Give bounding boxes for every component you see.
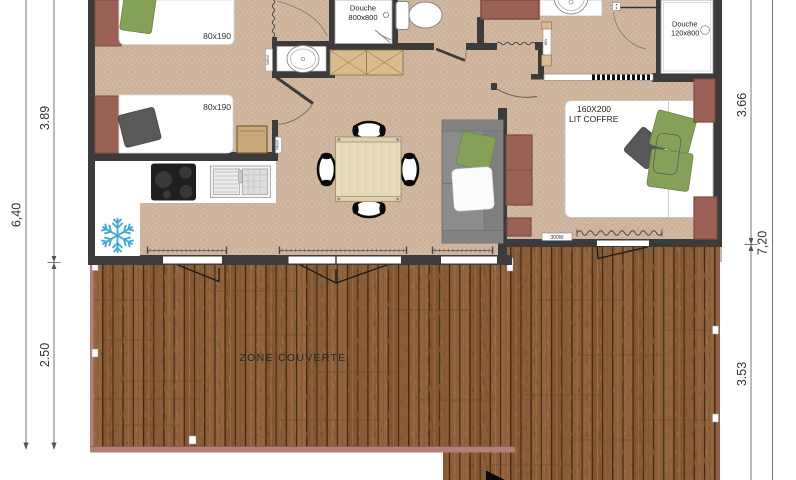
svg-text:80x190: 80x190 — [203, 31, 231, 41]
svg-text:Douche: Douche — [672, 20, 697, 29]
svg-text:Douche: Douche — [350, 4, 376, 13]
svg-text:160X200: 160X200 — [577, 104, 611, 114]
svg-text:ZONE COUVERTE: ZONE COUVERTE — [239, 352, 346, 364]
svg-text:300W: 300W — [550, 235, 563, 241]
svg-text:LIT COFFRE: LIT COFFRE — [569, 114, 619, 124]
svg-text:3.66: 3.66 — [735, 93, 749, 117]
svg-text:800x800: 800x800 — [348, 13, 377, 22]
svg-text:80W: 80W — [544, 39, 548, 46]
svg-text:MEW: MEW — [265, 55, 270, 65]
svg-text:3.53: 3.53 — [735, 362, 749, 386]
svg-text:3.89: 3.89 — [38, 106, 52, 130]
svg-text:80x190: 80x190 — [203, 102, 231, 112]
svg-text:120x800: 120x800 — [671, 29, 699, 38]
svg-text:6,40: 6,40 — [10, 203, 24, 227]
svg-text:FRIGO: FRIGO — [276, 139, 280, 150]
svg-text:2.50: 2.50 — [38, 343, 52, 367]
svg-text:7,20: 7,20 — [756, 231, 770, 255]
